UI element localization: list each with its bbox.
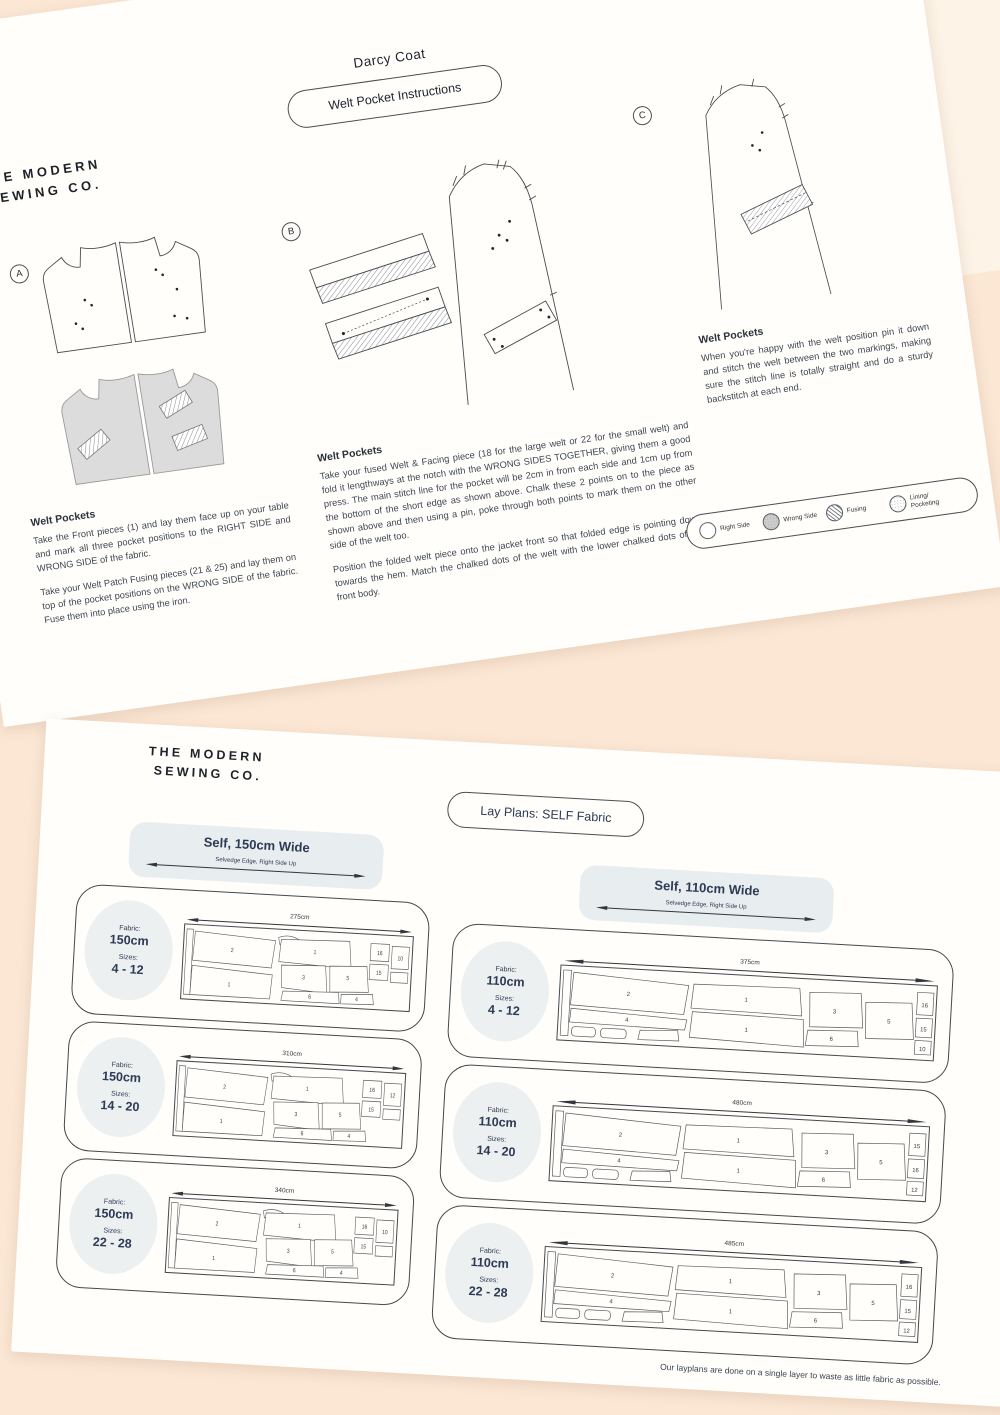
svg-text:12: 12: [903, 1329, 911, 1335]
brand-logo: THE MODERN SEWING CO.: [0, 154, 105, 211]
fabric-width: 150cm: [109, 932, 149, 948]
section-a-letter-badge: A: [9, 263, 30, 284]
svg-text:6: 6: [293, 1268, 296, 1275]
layplan-diagram: 340cm: [165, 1181, 400, 1286]
svg-text:4: 4: [340, 1270, 343, 1277]
svg-text:16: 16: [912, 1168, 920, 1174]
svg-text:1: 1: [212, 1255, 215, 1262]
length-label: 375cm: [740, 958, 760, 966]
column-150cm: Self, 150cm Wide Selvedge Edge, Right Si…: [54, 818, 434, 1313]
fabric-size-label: Fabric: 110cm Sizes: 14 - 20: [450, 1080, 543, 1185]
svg-text:5: 5: [346, 976, 349, 983]
fusing-swatch-icon: [825, 503, 844, 522]
layplan-diagram: 375cm: [556, 948, 939, 1061]
svg-text:15: 15: [376, 970, 382, 977]
svg-text:16: 16: [362, 1224, 368, 1231]
pattern-pieces-box: 2 1 1 3 5 6 4 16 15 12: [172, 1060, 406, 1149]
svg-text:3: 3: [287, 1248, 290, 1255]
front-pieces-diagram: [30, 224, 239, 498]
legend-fusing: Fusing: [825, 498, 882, 522]
section-a: A: [0, 218, 302, 638]
svg-text:15: 15: [368, 1107, 374, 1114]
section-c-letter-badge: C: [632, 105, 653, 126]
length-label: 275cm: [290, 913, 310, 921]
fabric-size-label: Fabric: 150cm Sizes: 22 - 28: [67, 1172, 160, 1277]
right-side-swatch-icon: [698, 521, 717, 540]
legend-fusing-label: Fusing: [846, 503, 881, 515]
svg-text:5: 5: [338, 1112, 341, 1119]
svg-text:2: 2: [231, 948, 234, 955]
svg-text:16: 16: [369, 1087, 375, 1094]
svg-text:15: 15: [913, 1144, 921, 1150]
layplan-diagram: 310cm: [172, 1044, 407, 1149]
fabric-label: Fabric:: [480, 1247, 502, 1255]
svg-text:6: 6: [300, 1131, 303, 1138]
length-label: 480cm: [732, 1099, 752, 1107]
layplan-card-150-4-12: Fabric: 150cm Sizes: 4 - 12 275cm: [70, 883, 431, 1033]
fabric-size-label: Fabric: 150cm Sizes: 4 - 12: [82, 898, 175, 1003]
legend-lining-label: Lining/ Pocketing: [909, 490, 945, 510]
legend-wrong-side-label: Wrong Side: [783, 512, 818, 524]
layplan-page: THE MODERN SEWING CO. Lay Plans: SELF Fa…: [11, 718, 1000, 1407]
lining-swatch-icon: [888, 494, 907, 513]
sizes-label: Sizes:: [487, 1135, 506, 1143]
fabric-width: 150cm: [94, 1205, 134, 1221]
sizes-label: Sizes:: [103, 1227, 122, 1235]
svg-text:3: 3: [302, 975, 305, 982]
layplan-card-110-14-20: Fabric: 110cm Sizes: 14 - 20 480cm: [438, 1063, 947, 1225]
svg-text:1: 1: [227, 982, 230, 989]
svg-text:4: 4: [347, 1134, 350, 1141]
svg-text:5: 5: [331, 1249, 334, 1256]
wrong-side-swatch-icon: [762, 512, 781, 531]
layplan-card-150-22-28: Fabric: 150cm Sizes: 22 - 28 340cm: [55, 1157, 416, 1307]
fabric-label: Fabric:: [119, 924, 141, 932]
fabric-size-label: Fabric: 110cm Sizes: 4 - 12: [458, 939, 551, 1044]
fabric-width: 150cm: [102, 1069, 142, 1085]
fabric-label: Fabric:: [487, 1106, 509, 1114]
layplan-card-150-14-20: Fabric: 150cm Sizes: 14 - 20 310cm: [62, 1020, 423, 1170]
pattern-pieces: 2 1 1 3 5 6 4 16 15 10: [181, 924, 413, 1011]
fabric-size-label: Fabric: 150cm Sizes: 14 - 20: [74, 1035, 167, 1140]
fabric-size-label: Fabric: 110cm Sizes: 22 - 28: [442, 1221, 535, 1326]
legend-right-side: Right Side: [698, 516, 755, 540]
jacket-front-pinned-welt: [690, 72, 831, 309]
layplan-diagram: 485cm: [541, 1230, 924, 1343]
pattern-pieces: 2 1 1 3 5 6 4 16 15 12: [173, 1061, 405, 1148]
legend-right-side-label: Right Side: [720, 520, 755, 532]
layplan-diagram: 480cm: [548, 1089, 931, 1202]
svg-text:10: 10: [397, 956, 403, 963]
svg-text:10: 10: [382, 1230, 388, 1237]
svg-text:1: 1: [313, 950, 316, 957]
svg-text:1: 1: [298, 1223, 301, 1230]
legend-lining: Lining/ Pocketing: [888, 489, 945, 513]
legend-wrong-side: Wrong Side: [762, 507, 819, 531]
fabric-label: Fabric:: [111, 1061, 133, 1069]
jacket-front-with-welt: [435, 154, 574, 405]
fabric-width: 110cm: [478, 1114, 517, 1130]
fabric-label: Fabric:: [495, 965, 517, 973]
sizes-label: Sizes:: [119, 953, 138, 961]
column-150cm-header: Self, 150cm Wide Selvedge Edge, Right Si…: [128, 821, 385, 890]
pattern-pieces-box: 2 1 1 3 5 6 4 16 15 10: [165, 1197, 399, 1286]
welt-fold-diagram: [289, 138, 640, 438]
svg-text:3: 3: [294, 1112, 297, 1119]
svg-text:1: 1: [306, 1086, 309, 1093]
page-title-block: Darcy Coat Welt Pocket Instructions: [235, 29, 551, 137]
svg-text:16: 16: [377, 951, 383, 958]
svg-text:16: 16: [921, 1003, 929, 1009]
layplan-diagram: 275cm: [180, 907, 415, 1012]
svg-text:1: 1: [220, 1119, 223, 1126]
section-c: C: [663, 51, 938, 417]
column-110cm-header: Self, 110cm Wide Selvedge Edge, Right Si…: [578, 864, 835, 933]
brand-logo: THE MODERN SEWING CO.: [147, 742, 265, 787]
fabric-legend: Right Side Wrong Side Fusing Lining/ Poc…: [684, 475, 980, 551]
sizes-label: Sizes:: [111, 1090, 130, 1098]
fabric-width: 110cm: [470, 1254, 509, 1270]
layplan-title-pill: Lay Plans: SELF Fabric: [446, 791, 645, 838]
svg-text:15: 15: [920, 1027, 928, 1033]
svg-text:10: 10: [919, 1047, 927, 1053]
svg-text:4: 4: [355, 997, 358, 1004]
layplan-card-110-4-12: Fabric: 110cm Sizes: 4 - 12 375cm: [446, 922, 955, 1084]
fabric-label: Fabric:: [104, 1198, 126, 1206]
front-pieces-wrong-side-fused: [58, 363, 228, 485]
length-label: 485cm: [724, 1240, 744, 1248]
section-b: B: [279, 132, 708, 615]
front-pieces-right-side: [40, 232, 210, 354]
svg-text:2: 2: [223, 1084, 226, 1091]
welt-stitched-diagram: [669, 54, 900, 319]
sizes-range: 4 - 12: [488, 1002, 521, 1018]
sizes-label: Sizes:: [479, 1276, 498, 1284]
pattern-pieces: 2 1 1 3 5 6 4 16 15 10: [166, 1198, 398, 1285]
sizes-range: 4 - 12: [111, 961, 144, 977]
sizes-range: 22 - 28: [93, 1234, 133, 1250]
svg-text:2: 2: [215, 1221, 218, 1228]
fabric-width: 110cm: [486, 973, 525, 989]
svg-text:12: 12: [911, 1188, 919, 1194]
column-110cm: Self, 110cm Wide Selvedge Edge, Right Si…: [430, 858, 958, 1373]
svg-text:15: 15: [360, 1244, 366, 1251]
instruction-page: #MSCdarcycoat #modernsewingco @modern_se…: [0, 0, 1000, 727]
sizes-label: Sizes:: [495, 994, 514, 1002]
layplan-card-110-22-28: Fabric: 110cm Sizes: 22 - 28 485cm: [431, 1204, 940, 1366]
svg-text:16: 16: [905, 1285, 913, 1291]
folded-welt-pieces: [307, 231, 454, 361]
sizes-range: 14 - 20: [476, 1143, 516, 1159]
sizes-range: 14 - 20: [100, 1097, 140, 1113]
pattern-pieces-box: 2 1 1 3 5 6 4 16 15 10: [180, 923, 414, 1012]
svg-text:6: 6: [308, 994, 311, 1001]
length-label: 340cm: [275, 1187, 295, 1195]
scanned-pattern-sheets: #MSCdarcycoat #modernsewingco @modern_se…: [0, 0, 1000, 1415]
sizes-range: 22 - 28: [468, 1283, 508, 1299]
svg-text:12: 12: [390, 1093, 396, 1100]
svg-text:15: 15: [904, 1309, 912, 1315]
length-label: 310cm: [282, 1050, 302, 1058]
